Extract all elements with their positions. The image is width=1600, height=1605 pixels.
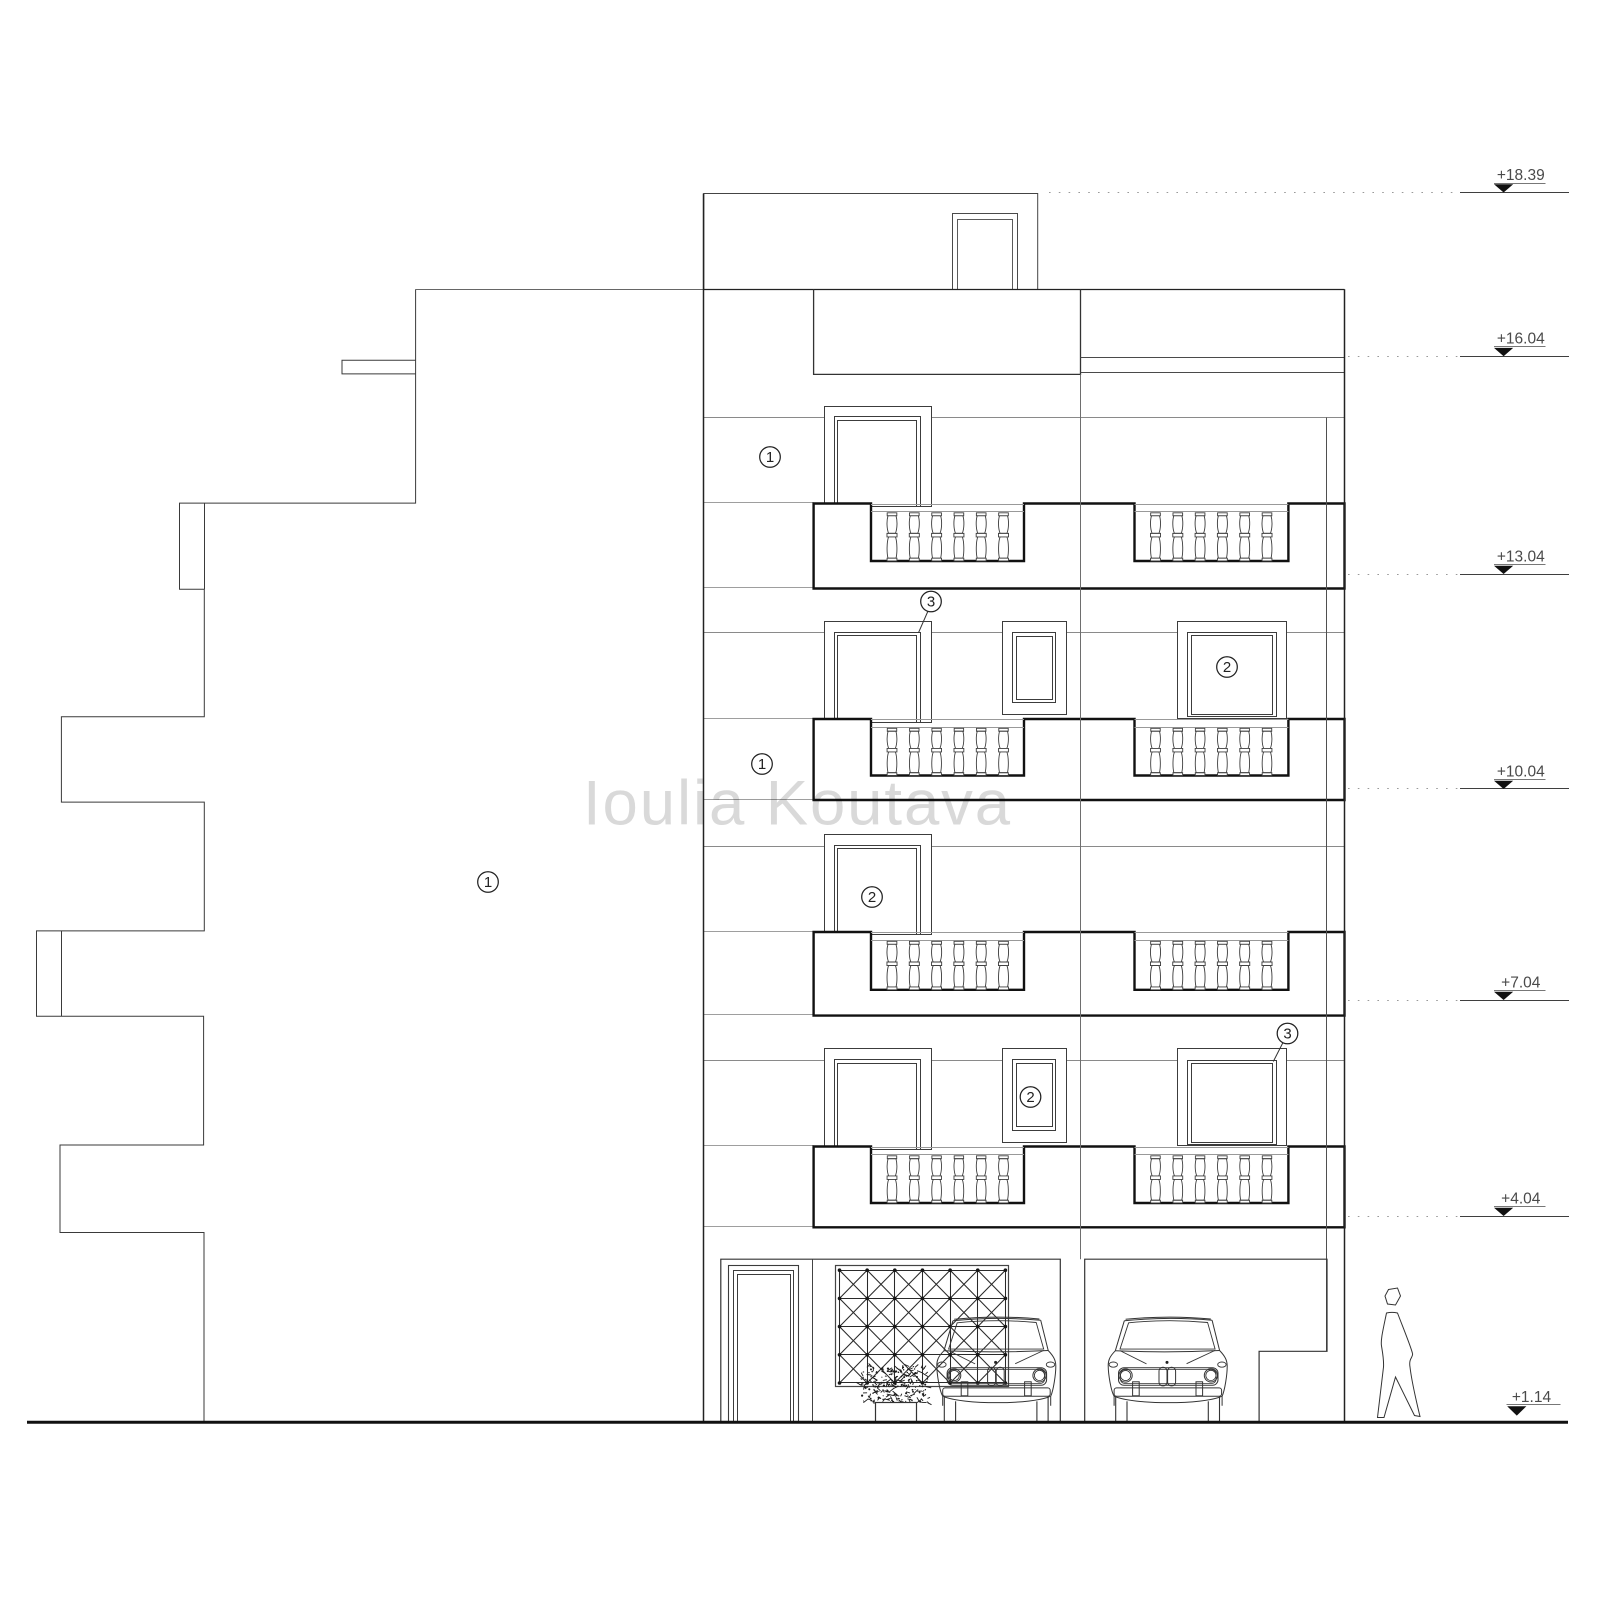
svg-text:1: 1 — [766, 449, 774, 466]
svg-text:+10.04: +10.04 — [1497, 764, 1545, 781]
svg-text:2: 2 — [1223, 659, 1231, 676]
svg-text:+7.04: +7.04 — [1501, 975, 1541, 992]
svg-text:+4.04: +4.04 — [1501, 1191, 1541, 1208]
svg-text:3: 3 — [927, 594, 935, 611]
svg-text:2: 2 — [1026, 1089, 1034, 1106]
svg-text:3: 3 — [1283, 1026, 1291, 1043]
svg-text:+18.39: +18.39 — [1497, 167, 1545, 184]
svg-text:+16.04: +16.04 — [1497, 331, 1545, 348]
svg-text:+13.04: +13.04 — [1497, 549, 1545, 566]
svg-text:2: 2 — [868, 889, 876, 906]
svg-text:1: 1 — [484, 874, 492, 891]
svg-text:+1.14: +1.14 — [1512, 1389, 1552, 1406]
svg-text:Ioulia Koutava: Ioulia Koutava — [583, 769, 1012, 839]
